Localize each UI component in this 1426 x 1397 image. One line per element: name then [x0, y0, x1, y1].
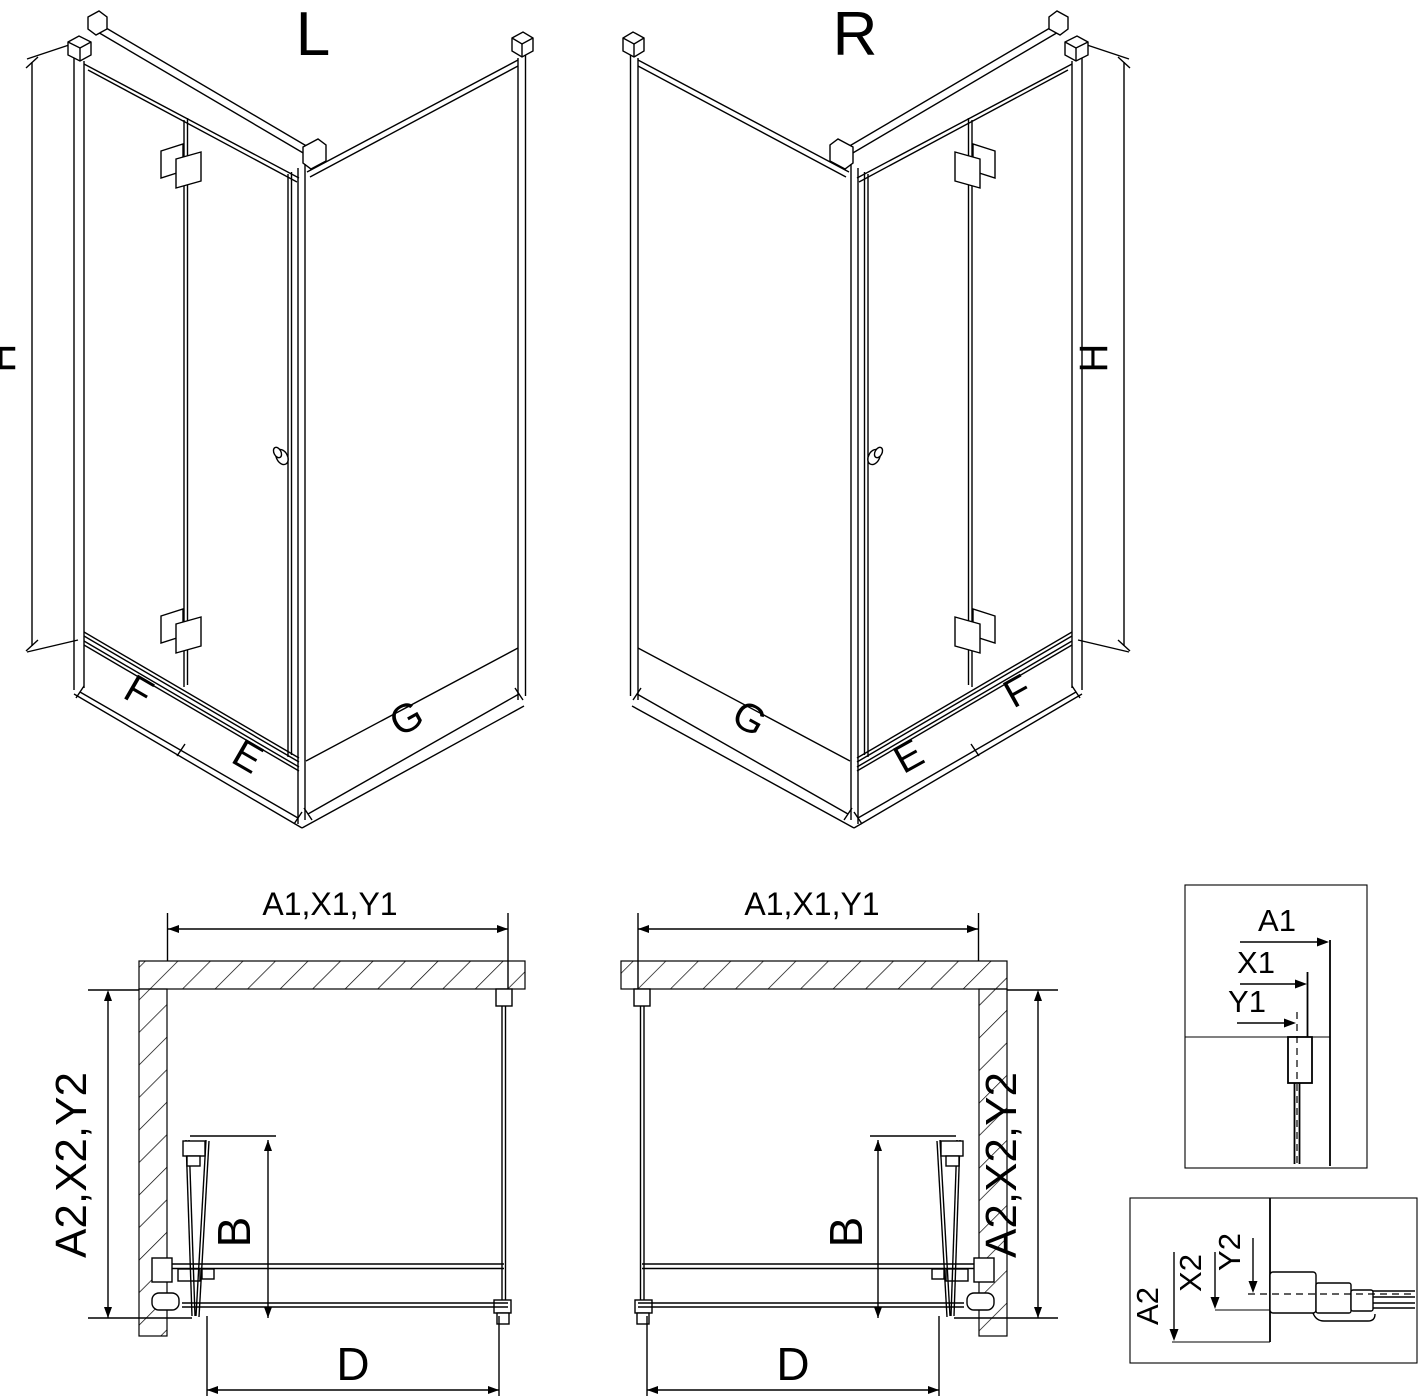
plan-left-entry-label: D: [336, 1338, 369, 1390]
iso-left-side-label: G: [382, 692, 431, 746]
detail-top-view: A1 X1 Y1: [1185, 885, 1367, 1168]
detail-a2-label: A2: [1130, 1287, 1165, 1325]
plan-left-width-label: A1,X1,Y1: [262, 886, 397, 922]
wall-profile-section: [1270, 1272, 1415, 1321]
plan-left-depth-label: A2,X2,Y2: [47, 1072, 96, 1258]
detail-x2-label: X2: [1173, 1254, 1208, 1292]
plan-right-view: A1,X1,Y1 A2,X2,Y2 B D: [621, 886, 1058, 1396]
detail-bottom-view: A2 X2 Y2: [1130, 1198, 1417, 1363]
plan-left-view: A1,X1,Y1 A2,X2,Y2 B D: [47, 886, 525, 1396]
detail-y1-label: Y1: [1228, 984, 1266, 1019]
variant-left-title: L: [296, 0, 330, 69]
iso-left-view: L H F E G: [0, 0, 533, 828]
variant-right-title: R: [833, 0, 878, 69]
plan-left-fold-label: B: [208, 1217, 260, 1248]
plan-right-entry-label: D: [776, 1338, 809, 1390]
plan-right-fold-label: B: [820, 1217, 872, 1248]
wall-hatch-top: [621, 961, 1007, 989]
detail-x1-label: X1: [1237, 945, 1275, 980]
iso-right-height-label: H: [1072, 344, 1116, 373]
wall-hatch-side: [139, 989, 167, 1336]
iso-right-side-label: G: [725, 692, 774, 746]
plan-right-width-label: A1,X1,Y1: [744, 886, 879, 922]
iso-left-panel1-label: F: [117, 667, 160, 717]
iso-right-panel2-label: E: [886, 731, 931, 782]
iso-left-height-label: H: [0, 344, 24, 373]
drawing-page: L H F E G R H G E F A1,X1,Y1 A2,X2,Y2 B …: [0, 0, 1426, 1397]
wall-hatch-top: [139, 961, 525, 989]
plan-right-depth-label: A2,X2,Y2: [977, 1072, 1026, 1258]
detail-y2-label: Y2: [1212, 1233, 1247, 1271]
iso-right-panel1-label: F: [996, 666, 1039, 716]
iso-left-panel2-label: E: [225, 731, 270, 782]
detail-a1-label: A1: [1258, 903, 1296, 938]
wall-profile-section: [1288, 1037, 1312, 1083]
technical-drawing-canvas: L H F E G R H G E F A1,X1,Y1 A2,X2,Y2 B …: [0, 0, 1426, 1397]
iso-right-view: R H G E F: [623, 0, 1130, 828]
